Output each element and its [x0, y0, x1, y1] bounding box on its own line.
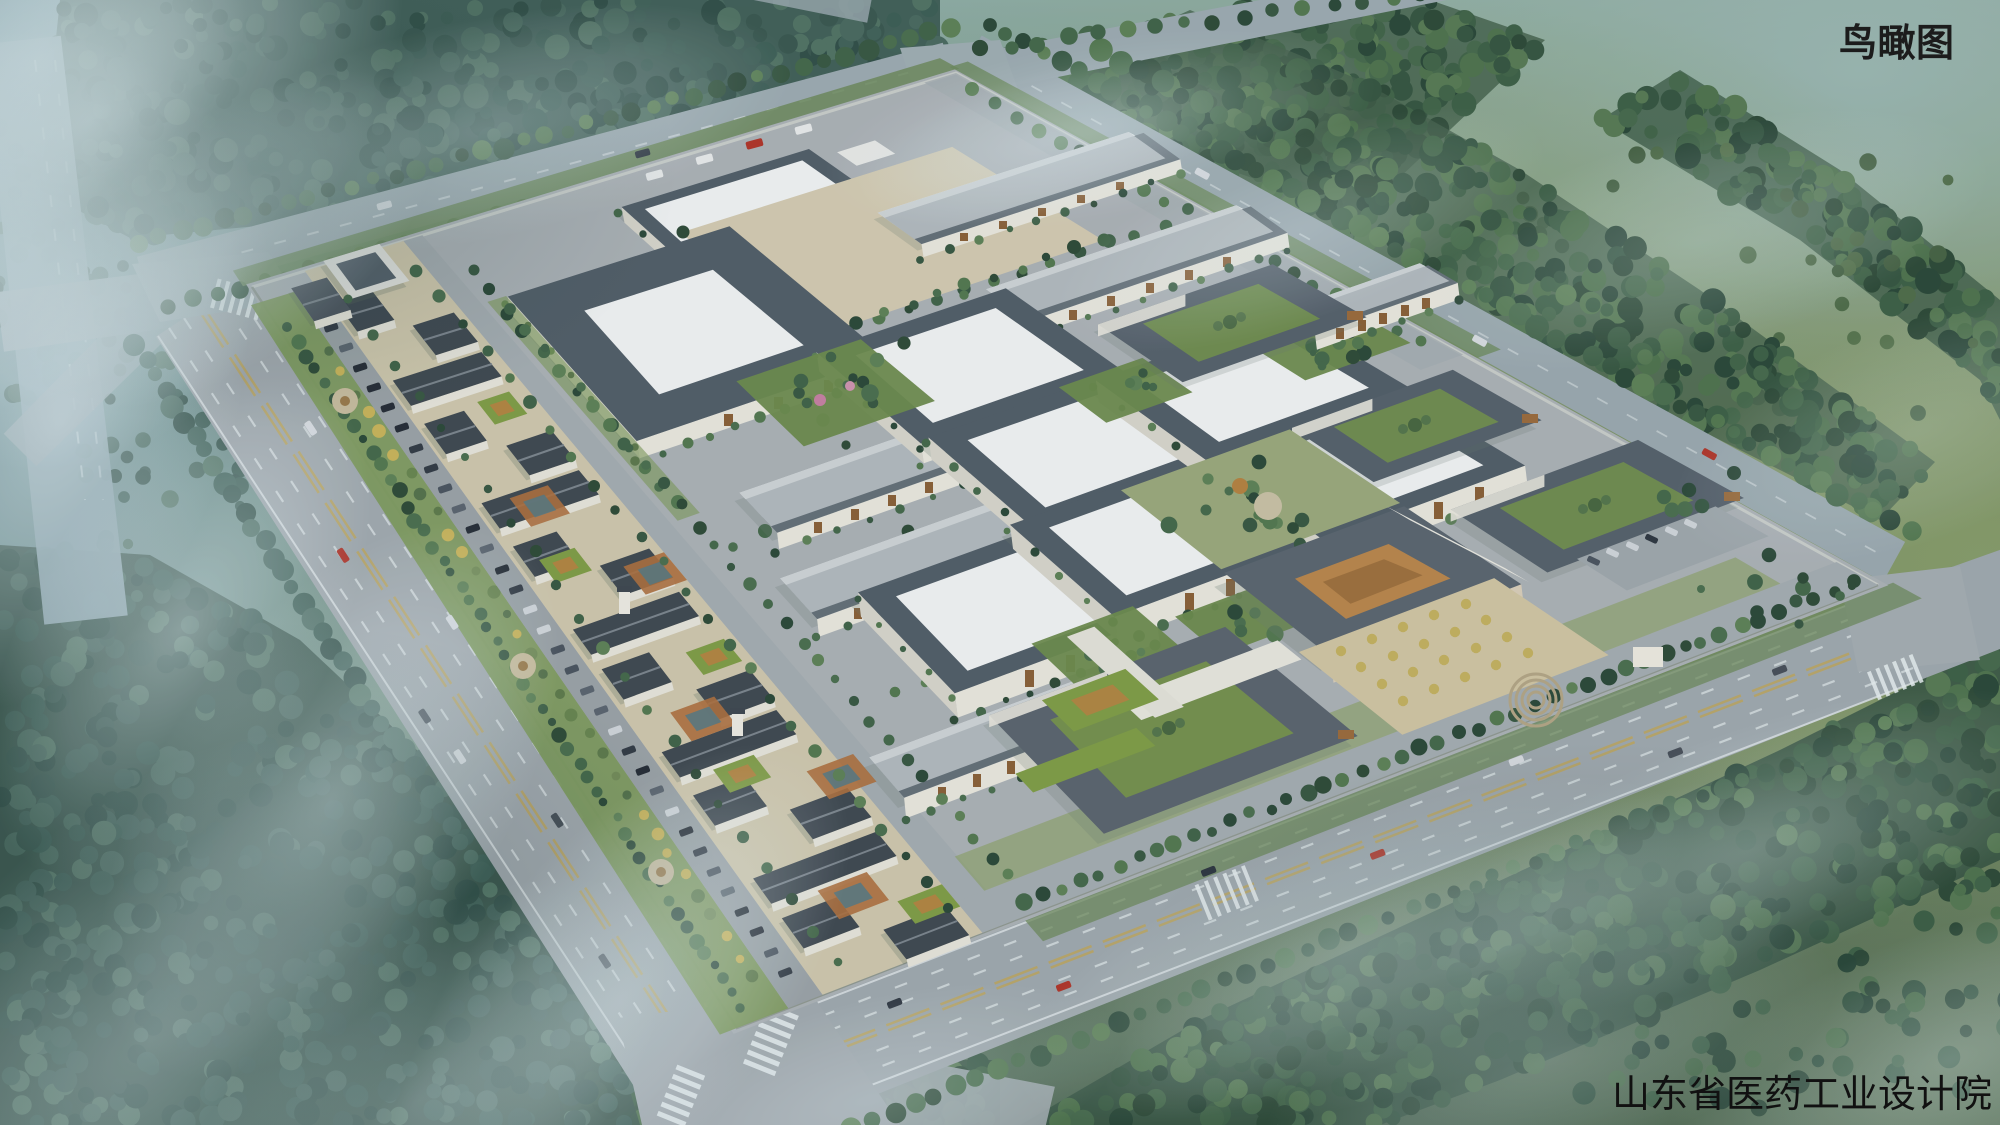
svg-text:鸟瞰图: 鸟瞰图 — [1839, 23, 1955, 65]
svg-text:山东省医药工业设计院: 山东省医药工业设计院 — [1612, 1074, 1992, 1116]
